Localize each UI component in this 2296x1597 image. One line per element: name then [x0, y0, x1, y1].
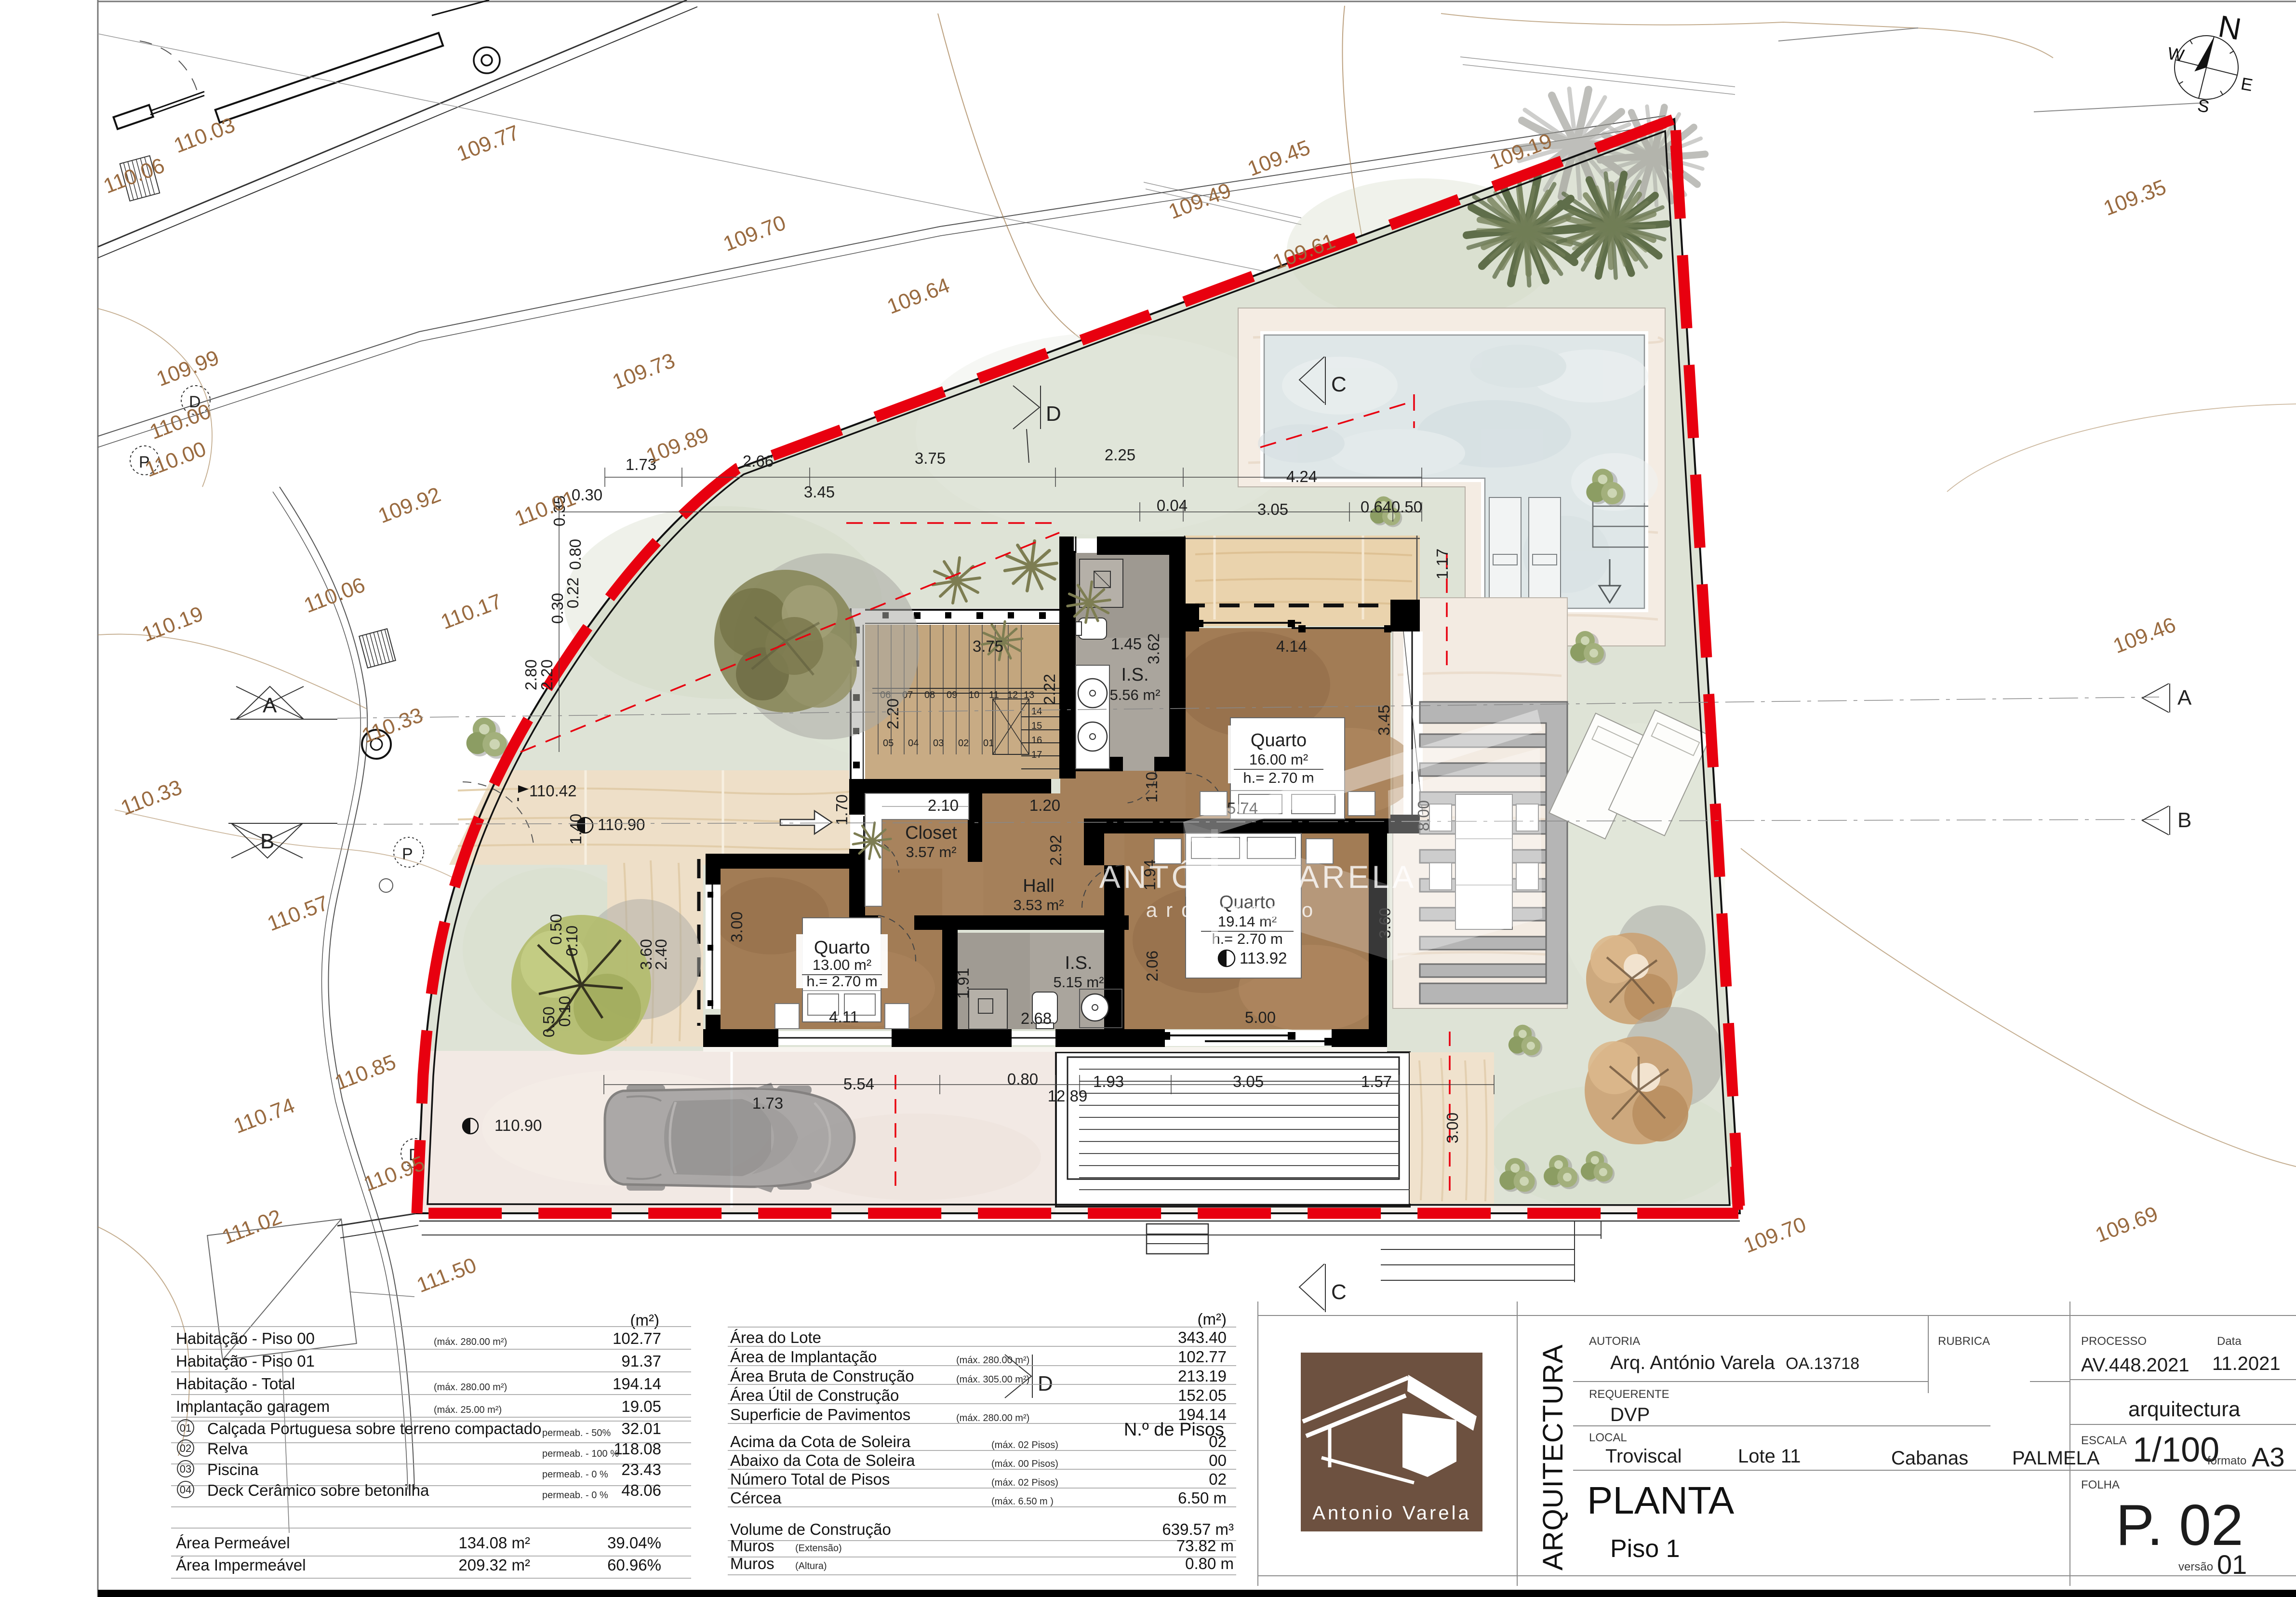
svg-text:Área do Lote: Área do Lote — [730, 1329, 821, 1346]
svg-text:04: 04 — [180, 1484, 191, 1496]
svg-text:FOLHA: FOLHA — [2081, 1478, 2120, 1491]
svg-text:4.14: 4.14 — [1276, 637, 1307, 655]
svg-text:Acima da Cota de Soleira: Acima da Cota de Soleira — [730, 1433, 911, 1450]
svg-text:19.05: 19.05 — [621, 1397, 661, 1415]
svg-text:1/100: 1/100 — [2133, 1431, 2219, 1469]
svg-text:2.10: 2.10 — [928, 796, 959, 814]
svg-text:1.93: 1.93 — [1093, 1073, 1124, 1090]
svg-text:0.80: 0.80 — [566, 539, 584, 570]
svg-text:Relva: Relva — [207, 1440, 248, 1458]
svg-text:3.53 m²: 3.53 m² — [1013, 897, 1064, 913]
svg-text:C: C — [1331, 373, 1347, 396]
svg-text:(máx. 6.50 m ): (máx. 6.50 m ) — [991, 1496, 1054, 1507]
svg-text:Quarto: Quarto — [814, 938, 870, 958]
svg-text:0.10: 0.10 — [563, 926, 581, 956]
svg-text:2.68: 2.68 — [1021, 1009, 1052, 1027]
svg-text:(máx. 02 Pisos): (máx. 02 Pisos) — [991, 1477, 1058, 1488]
svg-text:3.57 m²: 3.57 m² — [906, 844, 956, 860]
svg-text:A3: A3 — [2252, 1442, 2285, 1472]
svg-text:DVP: DVP — [1610, 1404, 1650, 1425]
svg-text:3.45: 3.45 — [804, 483, 835, 501]
svg-text:2.22: 2.22 — [1041, 674, 1058, 705]
svg-text:A: A — [263, 694, 277, 717]
svg-text:1.17: 1.17 — [1433, 549, 1451, 579]
svg-text:16: 16 — [1031, 735, 1042, 746]
svg-text:Número Total de Pisos: Número Total de Pisos — [730, 1470, 890, 1488]
svg-text:0.50: 0.50 — [547, 914, 565, 945]
svg-text:Abaixo da Cota de Soleira: Abaixo da Cota de Soleira — [730, 1451, 915, 1469]
svg-text:02: 02 — [180, 1442, 191, 1454]
svg-text:12.89: 12.89 — [1048, 1087, 1088, 1105]
svg-text:14: 14 — [1031, 706, 1042, 717]
svg-text:12: 12 — [1007, 690, 1018, 700]
svg-text:134.08 m²: 134.08 m² — [458, 1534, 530, 1552]
svg-text:5.00: 5.00 — [1245, 1008, 1276, 1026]
svg-text:ANTÓNIO VARELA: ANTÓNIO VARELA — [1099, 859, 1417, 895]
svg-text:17: 17 — [1031, 750, 1042, 760]
svg-text:Piscina: Piscina — [207, 1461, 259, 1478]
svg-text:01: 01 — [180, 1422, 191, 1434]
svg-text:4.11: 4.11 — [829, 1008, 859, 1026]
svg-text:D: D — [1038, 1372, 1053, 1396]
svg-text:Área Impermeável: Área Impermeável — [176, 1556, 306, 1574]
svg-text:5.56 m²: 5.56 m² — [1109, 686, 1160, 703]
svg-text:Área de Implantação: Área de Implantação — [730, 1348, 877, 1366]
svg-text:4.24: 4.24 — [1286, 468, 1317, 485]
svg-text:OA.13718: OA.13718 — [1786, 1355, 1859, 1373]
svg-text:Piso 1: Piso 1 — [1610, 1535, 1680, 1563]
svg-text:PALMELA: PALMELA — [2012, 1448, 2100, 1469]
svg-text:03: 03 — [180, 1463, 191, 1475]
svg-text:102.77: 102.77 — [1178, 1348, 1227, 1366]
svg-text:0.50: 0.50 — [540, 1007, 558, 1037]
svg-text:Volume de Construção: Volume de Construção — [730, 1520, 891, 1538]
svg-text:2.20: 2.20 — [884, 698, 902, 729]
svg-text:0.50: 0.50 — [1391, 498, 1422, 516]
svg-text:343.40: 343.40 — [1178, 1329, 1227, 1346]
svg-text:Cabanas: Cabanas — [1891, 1448, 1968, 1469]
svg-text:2.92: 2.92 — [1047, 835, 1065, 866]
svg-text:AUTORIA: AUTORIA — [1589, 1335, 1640, 1348]
svg-text:118.08: 118.08 — [614, 1440, 661, 1458]
svg-text:639.57 m³: 639.57 m³ — [1162, 1520, 1234, 1538]
svg-text:39.04%: 39.04% — [607, 1534, 661, 1552]
svg-text:(máx. 25.00 m²): (máx. 25.00 m²) — [434, 1405, 502, 1415]
svg-text:5.54: 5.54 — [843, 1075, 874, 1093]
svg-text:3.05: 3.05 — [1233, 1073, 1264, 1090]
svg-text:Área Bruta de Construção: Área Bruta de Construção — [730, 1367, 914, 1385]
svg-text:1.57: 1.57 — [1361, 1073, 1392, 1090]
svg-text:213.19: 213.19 — [1178, 1367, 1227, 1385]
svg-text:(Altura): (Altura) — [795, 1561, 827, 1571]
svg-text:(máx. 305.00 m²): (máx. 305.00 m²) — [956, 1374, 1029, 1385]
svg-text:I.S.: I.S. — [1121, 665, 1148, 685]
svg-text:LOCAL: LOCAL — [1589, 1431, 1627, 1444]
svg-text:3.75: 3.75 — [915, 449, 946, 467]
svg-text:permeab. - 0 %: permeab. - 0 % — [542, 1469, 608, 1480]
svg-text:6.50 m: 6.50 m — [1178, 1489, 1227, 1507]
svg-text:0.10: 0.10 — [556, 996, 574, 1027]
svg-text:1.45: 1.45 — [1111, 635, 1142, 653]
svg-text:I.S.: I.S. — [1065, 953, 1092, 973]
svg-text:113.92: 113.92 — [1240, 949, 1287, 967]
svg-text:13: 13 — [1024, 690, 1034, 700]
svg-text:A: A — [2177, 686, 2192, 710]
svg-text:(máx. 02 Pisos): (máx. 02 Pisos) — [991, 1440, 1058, 1450]
svg-text:2.20: 2.20 — [538, 659, 556, 690]
svg-text:Quarto: Quarto — [1251, 730, 1307, 751]
svg-text:02: 02 — [1209, 1433, 1227, 1450]
svg-text:Habitação - Total: Habitação - Total — [176, 1375, 295, 1393]
svg-text:Lote 11: Lote 11 — [1738, 1446, 1801, 1467]
svg-text:02: 02 — [958, 738, 969, 749]
svg-text:0.80: 0.80 — [1007, 1070, 1038, 1088]
svg-text:Muros: Muros — [730, 1555, 774, 1572]
svg-text:2.06: 2.06 — [1143, 951, 1161, 981]
svg-text:04: 04 — [908, 738, 919, 749]
svg-text:Muros: Muros — [730, 1537, 774, 1555]
svg-text:3.05: 3.05 — [1257, 500, 1288, 518]
svg-text:23.43: 23.43 — [621, 1461, 661, 1478]
svg-text:13.00 m²: 13.00 m² — [813, 956, 871, 973]
svg-text:REQUERENTE: REQUERENTE — [1589, 1388, 1669, 1401]
svg-text:05: 05 — [883, 738, 894, 749]
svg-text:2.66: 2.66 — [743, 452, 774, 470]
svg-text:5.15 m²: 5.15 m² — [1053, 974, 1104, 991]
svg-text:Calçada Portuguesa sobre terre: Calçada Portuguesa sobre terreno compact… — [207, 1420, 541, 1437]
svg-text:RUBRICA: RUBRICA — [1938, 1335, 1990, 1348]
svg-text:0.22: 0.22 — [564, 577, 582, 608]
svg-text:AV.448.2021: AV.448.2021 — [2081, 1355, 2189, 1376]
svg-text:Hall: Hall — [1023, 876, 1054, 896]
svg-text:1.73: 1.73 — [752, 1094, 783, 1112]
svg-text:Habitação - Piso 00: Habitação - Piso 00 — [176, 1329, 315, 1347]
svg-text:(m²): (m²) — [1198, 1310, 1227, 1328]
svg-text:ARQUITECTURA: ARQUITECTURA — [1537, 1344, 1569, 1570]
svg-text:03: 03 — [933, 738, 944, 749]
svg-text:(máx. 280.00 m²): (máx. 280.00 m²) — [956, 1413, 1029, 1423]
svg-text:3.45: 3.45 — [1375, 705, 1393, 736]
svg-text:0.80 m: 0.80 m — [1185, 1555, 1234, 1572]
svg-text:Troviscal: Troviscal — [1605, 1446, 1682, 1467]
svg-text:3.62: 3.62 — [1145, 633, 1162, 664]
svg-text:2.25: 2.25 — [1105, 446, 1135, 464]
svg-text:01: 01 — [2217, 1549, 2247, 1580]
svg-text:Antonio Varela: Antonio Varela — [1312, 1503, 1471, 1524]
svg-text:permeab. - 100 %: permeab. - 100 % — [542, 1449, 619, 1459]
svg-text:(máx. 280.00 m²): (máx. 280.00 m²) — [434, 1382, 507, 1393]
svg-text:110.42: 110.42 — [529, 782, 576, 800]
svg-text:91.37: 91.37 — [621, 1352, 661, 1370]
svg-text:209.32 m²: 209.32 m² — [458, 1556, 530, 1574]
svg-text:(máx. 280.00 m²): (máx. 280.00 m²) — [434, 1337, 507, 1347]
svg-text:01: 01 — [983, 738, 994, 749]
svg-text:Área Útil de Construção: Área Útil de Construção — [730, 1386, 899, 1404]
svg-text:arquitecto: arquitecto — [1146, 899, 1322, 921]
svg-text:110.90: 110.90 — [598, 816, 645, 833]
svg-text:2.40: 2.40 — [652, 939, 670, 970]
svg-text:08: 08 — [924, 690, 935, 700]
svg-text:Cércea: Cércea — [730, 1489, 782, 1507]
svg-text:C: C — [1331, 1280, 1347, 1304]
svg-text:09: 09 — [947, 690, 957, 700]
svg-text:P: P — [402, 845, 413, 863]
svg-text:P. 02: P. 02 — [2116, 1493, 2243, 1557]
svg-text:permeab. - 50%: permeab. - 50% — [542, 1428, 611, 1438]
svg-text:Habitação - Piso 01: Habitação - Piso 01 — [176, 1352, 315, 1370]
svg-text:Superficie de Pavimentos: Superficie de Pavimentos — [730, 1406, 910, 1423]
svg-text:PLANTA: PLANTA — [1587, 1479, 1735, 1522]
svg-text:Área Permeável: Área Permeável — [176, 1534, 290, 1552]
svg-text:11.2021: 11.2021 — [2212, 1353, 2281, 1374]
svg-text:73.82 m: 73.82 m — [1176, 1537, 1234, 1555]
svg-text:formato: formato — [2207, 1454, 2246, 1467]
svg-text:16.00 m²: 16.00 m² — [1249, 751, 1308, 768]
svg-text:Arq. António Varela: Arq. António Varela — [1610, 1352, 1775, 1373]
svg-text:(Extensão): (Extensão) — [795, 1543, 842, 1554]
svg-text:194.14: 194.14 — [613, 1375, 661, 1393]
svg-text:110.90: 110.90 — [494, 1116, 542, 1134]
svg-text:Deck Cerâmico sobre betonilha: Deck Cerâmico sobre betonilha — [207, 1481, 429, 1499]
svg-text:152.05: 152.05 — [1178, 1386, 1227, 1404]
svg-text:PROCESSO: PROCESSO — [2081, 1335, 2147, 1348]
svg-text:0.30: 0.30 — [572, 486, 602, 504]
svg-text:3.75: 3.75 — [973, 637, 1003, 655]
svg-text:B: B — [2177, 808, 2191, 832]
svg-text:B: B — [260, 830, 274, 853]
svg-text:3.00: 3.00 — [1443, 1113, 1461, 1143]
svg-text:arquitectura: arquitectura — [2128, 1397, 2241, 1421]
svg-text:0.30: 0.30 — [548, 593, 566, 624]
svg-text:h.= 2.70 m: h.= 2.70 m — [1212, 930, 1282, 947]
svg-text:D: D — [1046, 402, 1061, 426]
svg-text:Closet: Closet — [905, 823, 957, 843]
svg-text:15: 15 — [1031, 721, 1042, 731]
svg-text:Implantação garagem: Implantação garagem — [176, 1397, 330, 1415]
svg-text:60.96%: 60.96% — [607, 1556, 661, 1574]
svg-text:h.= 2.70 m: h.= 2.70 m — [806, 973, 877, 990]
svg-text:1.70: 1.70 — [833, 794, 851, 825]
svg-text:h.= 2.70 m: h.= 2.70 m — [1243, 769, 1314, 786]
svg-text:W: W — [2166, 43, 2186, 66]
svg-text:1.20: 1.20 — [1029, 796, 1060, 814]
svg-text:ESCALA: ESCALA — [2081, 1434, 2127, 1447]
svg-text:permeab. - 0 %: permeab. - 0 % — [542, 1490, 608, 1501]
svg-text:02: 02 — [1209, 1470, 1227, 1488]
svg-text:102.77: 102.77 — [613, 1329, 661, 1347]
svg-text:32.01: 32.01 — [621, 1420, 661, 1437]
svg-text:1.91: 1.91 — [954, 968, 972, 999]
svg-text:(máx. 280.00 m²): (máx. 280.00 m²) — [956, 1355, 1029, 1366]
svg-text:0.64: 0.64 — [1361, 498, 1391, 516]
svg-text:versão: versão — [2178, 1560, 2213, 1573]
svg-text:0.04: 0.04 — [1157, 497, 1188, 514]
svg-text:1.10: 1.10 — [1143, 772, 1161, 803]
svg-text:(máx. 00 Pisos): (máx. 00 Pisos) — [991, 1459, 1058, 1469]
svg-text:11: 11 — [989, 690, 999, 700]
svg-text:00: 00 — [1209, 1451, 1227, 1469]
svg-text:10: 10 — [969, 690, 979, 700]
svg-text:2.80: 2.80 — [522, 659, 540, 690]
svg-text:3.00: 3.00 — [728, 912, 746, 942]
svg-text:Data: Data — [2217, 1335, 2242, 1348]
svg-text:48.06: 48.06 — [621, 1481, 661, 1499]
